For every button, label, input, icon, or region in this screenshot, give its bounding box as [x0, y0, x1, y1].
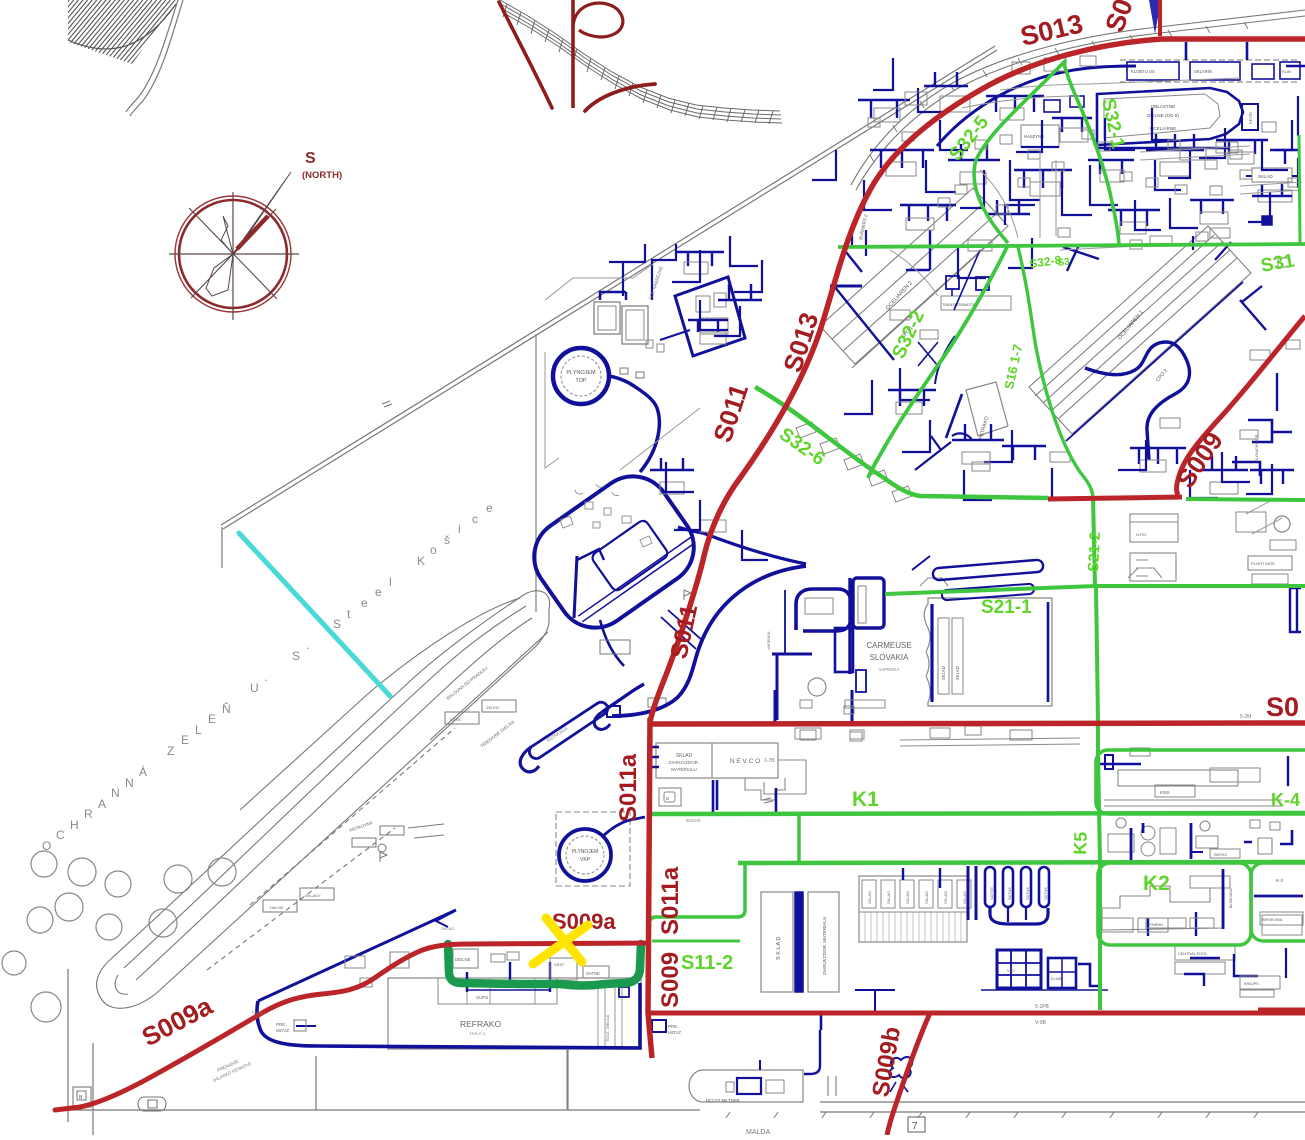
svg-text:S21-1: S21-1: [981, 597, 1032, 618]
svg-text:K-2: K-2: [1276, 878, 1284, 883]
svg-text:S009: S009: [657, 952, 684, 1008]
svg-text:PRE.: PRE.: [276, 1022, 287, 1027]
svg-text:ELAB: ELAB: [1051, 976, 1062, 981]
svg-text:HALNE: HALNE: [270, 905, 284, 910]
svg-text:SMTKC: SMTKC: [1214, 853, 1228, 857]
svg-text:S: S: [292, 649, 300, 663]
svg-text:POMRHC: POMRHC: [1148, 923, 1164, 927]
svg-text:S011a: S011a: [615, 753, 642, 822]
svg-text:OBLASTNE: OBLASTNE: [1151, 104, 1176, 109]
svg-text:IESNIK: IESNIK: [686, 818, 701, 823]
svg-text:SKLAD: SKLAD: [905, 891, 910, 904]
svg-text:VAPENKA: VAPENKA: [879, 667, 900, 672]
svg-text:SUPS: SUPS: [476, 995, 488, 1000]
svg-text:S: S: [305, 150, 316, 167]
svg-text:O: O: [42, 839, 51, 853]
svg-text:SKLAD: SKLAD: [943, 891, 948, 904]
svg-text:SATNE: SATNE: [1043, 887, 1048, 900]
svg-text:HALA 1: HALA 1: [470, 1031, 486, 1036]
svg-text:š: š: [444, 533, 450, 547]
svg-text:.: .: [264, 670, 267, 684]
svg-text:S21-2: S21-2: [1085, 531, 1104, 572]
svg-text:o: o: [430, 543, 437, 557]
svg-text:L: L: [195, 723, 202, 737]
svg-text:i: i: [458, 522, 461, 536]
svg-text:e: e: [375, 585, 382, 599]
svg-text:V-9B: V-9B: [1035, 1020, 1047, 1026]
svg-text:E: E: [208, 712, 216, 726]
svg-text:E: E: [181, 733, 189, 747]
svg-text:SATNE: SATNE: [989, 887, 994, 900]
svg-text:C: C: [56, 828, 65, 842]
svg-text:VAPENKA: VAPENKA: [766, 631, 771, 650]
svg-text:(NORTH): (NORTH): [302, 170, 342, 181]
svg-text:K5: K5: [1070, 831, 1091, 855]
svg-text:c: c: [472, 512, 478, 526]
svg-text:CENTRAL POOL: CENTRAL POOL: [1178, 952, 1207, 956]
svg-text:Ň: Ň: [222, 701, 231, 716]
svg-text:KLOBTU US: KLOBTU US: [1131, 69, 1155, 74]
svg-text:SKLAD: SKLAD: [1258, 174, 1274, 179]
svg-text:7: 7: [912, 1121, 918, 1132]
svg-text:BRISKVINA: BRISKVINA: [1262, 918, 1283, 922]
svg-text:KLIN: KLIN: [1282, 69, 1291, 74]
svg-text:SKLAD: SKLAD: [955, 666, 960, 680]
svg-text:5-2M: 5-2M: [1240, 714, 1251, 720]
svg-text:PRE.: PRE.: [668, 1024, 679, 1029]
svg-text:e: e: [361, 596, 368, 610]
svg-text:REFRAKO: REFRAKO: [460, 1019, 501, 1029]
svg-text:TOVZ. DIELNA: TOVZ. DIELNA: [605, 1014, 610, 1042]
svg-text:R: R: [84, 807, 93, 821]
svg-text:N: N: [125, 776, 134, 790]
svg-text:POSK: POSK: [450, 717, 461, 722]
svg-text:TOP: TOP: [575, 378, 587, 384]
svg-text:5-1PB: 5-1PB: [1035, 1004, 1050, 1010]
svg-text:KETRI: KETRI: [1248, 112, 1253, 124]
svg-text:MOVZ: MOVZ: [668, 1030, 681, 1035]
svg-text:CARMEUSE: CARMEUSE: [866, 641, 911, 650]
svg-text:PLYNOJEM: PLYNOJEM: [566, 370, 596, 376]
svg-text:SKLADY: SKLADY: [305, 893, 321, 898]
svg-text:OCELIARNE: OCELIARNE: [1150, 126, 1177, 131]
svg-text:e: e: [486, 501, 493, 515]
svg-text:MALDA: MALDA: [746, 1129, 770, 1135]
svg-text:PLOHT MOS: PLOHT MOS: [1251, 561, 1275, 566]
svg-text:SKLAD: SKLAD: [676, 753, 693, 759]
svg-text:K-4: K-4: [1271, 790, 1300, 810]
svg-text:SATNE: SATNE: [1025, 887, 1030, 900]
svg-text:Z: Z: [167, 744, 174, 758]
svg-text:SKLAD: SKLAD: [252, 1010, 265, 1015]
svg-text:H: H: [70, 818, 79, 832]
svg-text:SATNE: SATNE: [586, 971, 600, 976]
svg-text:BLISKVINA: BLISKVINA: [1229, 888, 1233, 908]
svg-text:Á: Á: [139, 764, 147, 779]
svg-text:S3: S3: [1057, 256, 1071, 269]
svg-text:SKLAD: SKLAD: [962, 891, 967, 904]
svg-text:A: A: [98, 797, 106, 811]
svg-text:1-7B: 1-7B: [764, 758, 775, 764]
svg-text:VKP: VKP: [580, 857, 591, 863]
svg-text:l: l: [389, 575, 392, 589]
svg-text:S: S: [333, 617, 341, 631]
svg-text:SLOVAKIA: SLOVAKIA: [870, 653, 910, 662]
svg-text:MOVZ: MOVZ: [276, 1028, 289, 1033]
svg-text:U: U: [250, 681, 259, 695]
svg-text:SKLAD: SKLAD: [441, 926, 454, 931]
svg-text:MATERIALU: MATERIALU: [671, 767, 696, 772]
svg-text:.: .: [306, 638, 309, 652]
svg-text:DIELNE: DIELNE: [455, 957, 471, 962]
svg-text:ZIARUVZDOR.: ZIARUVZDOR.: [669, 760, 700, 765]
svg-text:K1: K1: [852, 788, 879, 811]
svg-text:N E V C O: N E V C O: [730, 758, 760, 765]
svg-text:KISS: KISS: [1160, 790, 1170, 795]
svg-text:KRAJPS: KRAJPS: [1244, 982, 1259, 986]
svg-text:S K L A D: S K L A D: [776, 937, 782, 960]
svg-text:K2: K2: [1143, 872, 1170, 895]
svg-text:K: K: [417, 554, 425, 568]
svg-text:HJTO: HJTO: [1136, 532, 1146, 537]
svg-text:ZIARUVZDOR. MATERIALU: ZIARUVZDOR. MATERIALU: [822, 917, 827, 975]
svg-text:SATNE: SATNE: [1007, 887, 1012, 900]
svg-text:B: B: [666, 796, 669, 801]
svg-text:N: N: [111, 786, 120, 800]
svg-text:S11-2: S11-2: [681, 952, 733, 974]
svg-text:VPC: VPC: [1007, 968, 1015, 973]
svg-text:HCCST MILTNER: HCCST MILTNER: [706, 1098, 740, 1103]
svg-text:SKLARIN: SKLARIN: [1194, 69, 1212, 74]
svg-text:VRAT: VRAT: [554, 962, 565, 967]
svg-text:ZELEN: ZELEN: [486, 705, 499, 710]
svg-text:PLYNOJEM: PLYNOJEM: [572, 849, 599, 855]
svg-text:SKLAD: SKLAD: [924, 891, 929, 904]
svg-text:SKLAD: SKLAD: [886, 891, 891, 904]
svg-text:SKLAD: SKLAD: [867, 891, 872, 904]
svg-text:S0: S0: [1266, 692, 1299, 722]
svg-text:S011a: S011a: [657, 866, 684, 935]
svg-text:SKLAD: SKLAD: [941, 666, 946, 680]
